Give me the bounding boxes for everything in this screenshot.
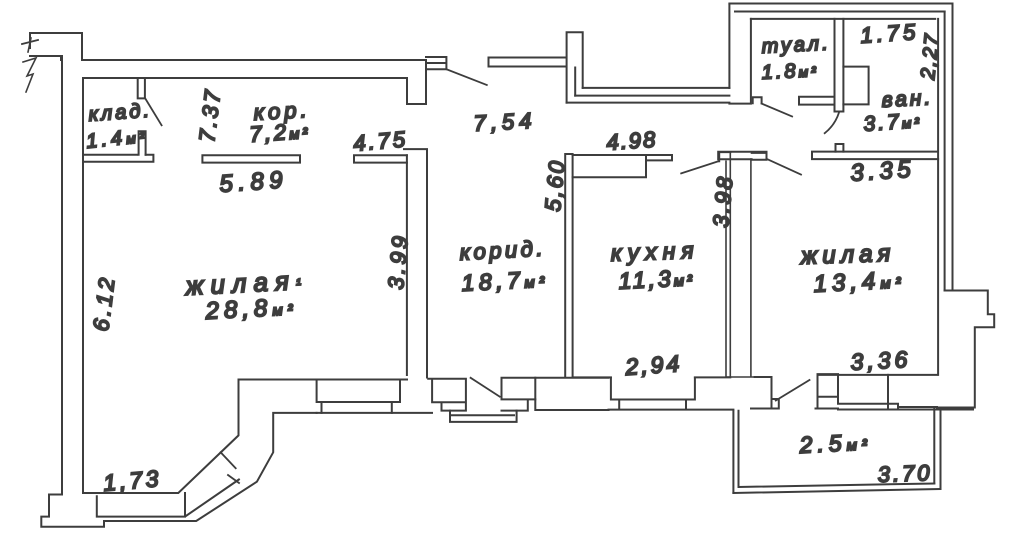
svg-text:3,36: 3,36: [850, 346, 912, 375]
svg-text:1.75: 1.75: [860, 19, 920, 48]
svg-text:1.8м²: 1.8м²: [761, 59, 819, 84]
svg-text:3.99: 3.99: [383, 232, 413, 291]
svg-text:3.35: 3.35: [850, 156, 916, 187]
svg-text:1,73: 1,73: [102, 465, 163, 496]
svg-text:5.89: 5.89: [219, 166, 289, 198]
svg-text:28,8м²: 28,8м²: [204, 293, 298, 325]
svg-text:7,54: 7,54: [473, 108, 537, 136]
svg-text:2,94: 2,94: [624, 350, 683, 380]
svg-text:клад.: клад.: [88, 100, 153, 126]
svg-text:жилая: жилая: [799, 240, 895, 270]
svg-text:5,60: 5,60: [540, 158, 570, 213]
svg-text:3.98: 3.98: [708, 174, 738, 229]
svg-text:4.98: 4.98: [606, 127, 658, 155]
svg-text:корид.: корид.: [459, 236, 547, 265]
svg-text:4.75: 4.75: [352, 126, 409, 156]
svg-text:13,4м²: 13,4м²: [813, 266, 906, 298]
svg-text:2.5м²: 2.5м²: [798, 428, 873, 458]
svg-text:2,27: 2,27: [917, 32, 944, 82]
svg-text:ван.: ван.: [881, 86, 934, 112]
svg-text:3.7м²: 3.7м²: [863, 109, 923, 136]
svg-text:18,7м²: 18,7м²: [461, 265, 549, 296]
svg-text:туал.: туал.: [761, 32, 831, 58]
svg-text:1.4м²: 1.4м²: [85, 125, 149, 153]
svg-text:7.37: 7.37: [194, 86, 225, 143]
svg-text:кухня: кухня: [610, 237, 700, 266]
svg-text:3.70: 3.70: [877, 460, 933, 487]
svg-text:6.12: 6.12: [88, 273, 120, 332]
svg-text:11,3м²: 11,3м²: [618, 264, 696, 294]
